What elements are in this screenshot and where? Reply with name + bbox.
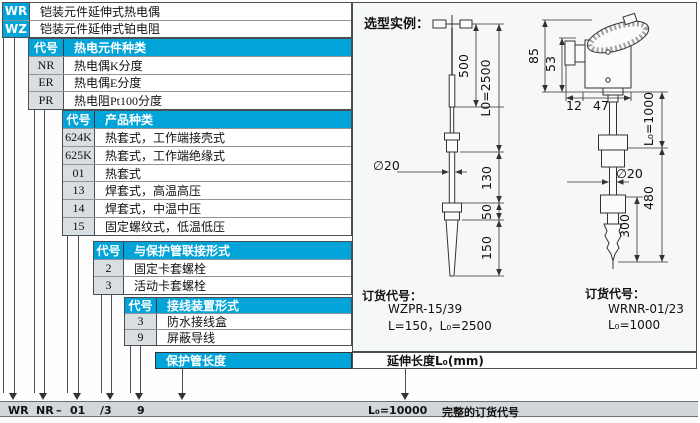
dim-dia20-2: ∅20 xyxy=(616,166,643,181)
arrow-down-icon xyxy=(178,393,186,400)
desc-cell: 铠装元件延伸式铂电阻 xyxy=(30,21,351,38)
table-row: 624K 热套式，工作端接壳式 xyxy=(63,128,351,146)
desc-cell: 活动卡套螺栓 xyxy=(124,277,351,294)
head-bolt-1 xyxy=(606,50,610,54)
ferrule-nut-upper xyxy=(445,133,460,140)
table-row: 3 防水接线盒 xyxy=(125,313,351,329)
table-row: 625K 热套式，工作端绝缘式 xyxy=(63,146,351,164)
section-terminal-type: 代号 接线装置形式 3 防水接线盒 9 屏蔽导线 xyxy=(124,297,352,346)
head-nipple xyxy=(608,95,618,102)
bar-code-9: 9 xyxy=(137,404,145,417)
dim-300: 300 xyxy=(617,214,632,238)
order-code-bar: WR NR – 01 /3 9 L₀=10000 完整的订货代号 xyxy=(0,401,698,417)
arrow-down-icon xyxy=(135,393,143,400)
dim-85: 85 xyxy=(526,48,541,64)
section-product-type: 代号 产品种类 624K 热套式，工作端接壳式 625K 热套式，工作端绝缘式 … xyxy=(62,110,352,236)
head-neck xyxy=(603,88,623,95)
table-row: 01 热套式 xyxy=(63,164,351,182)
desc-cell: 热电阻Pt100分度 xyxy=(64,92,351,109)
dim-dia20-1: ∅20 xyxy=(373,158,400,173)
arrow-down-icon xyxy=(39,393,47,400)
header-title-cell: 与保护管联接形式 xyxy=(124,242,351,259)
section-element-type: 代号 热电元件种类 NR 热电偶K分度 ER 热电偶E分度 PR 热电阻Pt10… xyxy=(28,38,352,110)
bar-length-code: L₀=10000 xyxy=(368,404,427,417)
order-detail-1: L=150，L₀=2500 xyxy=(388,317,492,334)
tube-length-header: 保护管长度 xyxy=(155,352,352,369)
code-cell: 3 xyxy=(94,277,124,294)
ferrule-nut-upper-hex xyxy=(447,140,458,152)
desc-cell: 铠装元件延伸式热电偶 xyxy=(30,3,351,20)
connector-leg-terminal xyxy=(130,345,141,393)
dim-47: 47 xyxy=(593,98,609,113)
lead-plug-left xyxy=(433,20,446,28)
code-cell: 13 xyxy=(63,182,95,199)
ferrule-nut-lower-hex xyxy=(445,212,460,220)
code-cell: PR xyxy=(29,92,64,109)
desc-cell: 热电偶E分度 xyxy=(64,75,351,92)
header-code-cell: 代号 xyxy=(125,298,157,313)
section-header: 代号 接线装置形式 xyxy=(125,298,351,313)
probe-tube-thin xyxy=(450,107,453,133)
probe-sheath xyxy=(449,75,455,107)
code-cell-wz: WZ xyxy=(3,21,30,38)
code-cell: 624K xyxy=(63,129,95,146)
order-code-2: WRNR-01/23 xyxy=(608,302,684,316)
dim-480: 480 xyxy=(641,186,656,210)
connector-leg-connection xyxy=(101,294,112,393)
table-row: ER 热电偶E分度 xyxy=(29,74,351,92)
table-row: 9 屏蔽导线 xyxy=(125,329,351,345)
dim-12: 12 xyxy=(566,98,582,113)
table-row: 3 活动卡套螺栓 xyxy=(94,276,351,294)
code-cell: 3 xyxy=(125,314,157,329)
code-cell: 2 xyxy=(94,260,124,277)
desc-cell: 屏蔽导线 xyxy=(157,330,351,345)
connector-leg-tube-length xyxy=(182,369,183,393)
bar-code-slash3: /3 xyxy=(100,404,112,417)
dim-500: 500 xyxy=(456,54,471,78)
extension-length-label: 延伸长度L₀(mm) xyxy=(387,352,484,369)
bar-caption: 完整的订货代号 xyxy=(442,404,519,420)
cable-entry-inner xyxy=(575,45,585,62)
table-row: WZ 铠装元件延伸式铂电阻 xyxy=(3,20,351,38)
header-code-cell: 代号 xyxy=(63,111,95,128)
order-code-1: WZPR-15/39 xyxy=(388,302,462,316)
code-cell: 01 xyxy=(63,165,95,182)
probe-tube-upper-2 xyxy=(610,102,617,135)
header-code-cell: 代号 xyxy=(29,39,64,56)
order-detail-2: L₀=1000 xyxy=(608,318,660,332)
probe-diagram-1: 500 L0=2500 130 50 150 ∅20 xyxy=(373,15,504,276)
union-nut-lower xyxy=(602,150,625,167)
desc-cell: 焊套式，中温中压 xyxy=(95,200,351,217)
arrow-down-icon xyxy=(73,393,81,400)
desc-cell: 防水接线盒 xyxy=(157,314,351,329)
dim-150: 150 xyxy=(479,236,494,260)
desc-cell: 热套式，工作端绝缘式 xyxy=(95,147,351,164)
arrow-down-icon xyxy=(106,393,114,400)
desc-cell: 固定卡套螺栓 xyxy=(124,260,351,277)
connector-leg-product xyxy=(67,235,79,393)
code-cell: 15 xyxy=(63,218,95,235)
dim-130: 130 xyxy=(479,166,494,190)
code-cell-wr: WR xyxy=(3,3,30,20)
dim-l0-1000: L₀=1000 xyxy=(641,92,656,146)
ferrule-nut-lower xyxy=(443,203,462,212)
code-cell: ER xyxy=(29,75,64,92)
tube-length-label: 保护管长度 xyxy=(166,352,226,369)
probe-tip-cone xyxy=(446,220,458,276)
header-title-cell: 热电元件种类 xyxy=(64,39,351,56)
dim-53: 53 xyxy=(543,56,558,72)
table-row: 2 固定卡套螺栓 xyxy=(94,259,351,277)
table-row: 13 焊套式，高温高压 xyxy=(63,181,351,199)
table-row: PR 热电阻Pt100分度 xyxy=(29,91,351,109)
section-connection-type: 代号 与保护管联接形式 2 固定卡套螺栓 3 活动卡套螺栓 xyxy=(93,241,352,295)
table-row: NR 热电偶K分度 xyxy=(29,56,351,74)
bar-code-dash: – xyxy=(56,404,62,417)
bar-code-wr: WR xyxy=(8,404,29,417)
bar-code-01: 01 xyxy=(70,404,85,417)
connector-leg-extension xyxy=(405,369,406,393)
dim-l0-2500: L0=2500 xyxy=(478,59,493,116)
header-title-cell: 接线装置形式 xyxy=(157,298,351,313)
desc-cell: 热套式 xyxy=(95,165,351,182)
code-cell: 9 xyxy=(125,330,157,345)
table-row: 15 固定螺纹式，低温低压 xyxy=(63,217,351,235)
table-row: WR 铠装元件延伸式热电偶 xyxy=(3,3,351,20)
desc-cell: 焊套式，高温高压 xyxy=(95,182,351,199)
header-code-cell: 代号 xyxy=(94,242,124,259)
section-header: 代号 与保护管联接形式 xyxy=(94,242,351,259)
extension-length-header: 延伸长度L₀(mm) xyxy=(352,352,697,369)
dim-50: 50 xyxy=(479,204,494,220)
table-row: 14 焊套式，中温中压 xyxy=(63,199,351,217)
top-code-block: WR 铠装元件延伸式热电偶 WZ 铠装元件延伸式铂电阻 xyxy=(2,2,352,38)
desc-cell: 热套式，工作端接壳式 xyxy=(95,129,351,146)
lead-plug-right xyxy=(460,20,472,28)
order-code-label-2: 订货代号： xyxy=(585,285,645,302)
probe-diagram-2: 85 53 12 47 L₀=1000 480 300 ∅20 xyxy=(526,13,668,269)
cable-entry-outer xyxy=(565,41,575,65)
probe-tube-20 xyxy=(449,152,454,203)
code-cell: 625K xyxy=(63,147,95,164)
section-header: 代号 热电元件种类 xyxy=(29,39,351,56)
section-header: 代号 产品种类 xyxy=(63,111,351,128)
desc-cell: 热电偶K分度 xyxy=(64,57,351,74)
arrow-down-icon xyxy=(401,393,409,400)
head-bolt-2 xyxy=(606,78,610,82)
arrow-down-icon xyxy=(9,393,17,400)
connector-leg-element xyxy=(34,109,45,393)
union-nut-upper xyxy=(599,135,628,150)
connector-leg-wr xyxy=(3,37,15,393)
code-cell: 14 xyxy=(63,200,95,217)
datasheet-page: WR 铠装元件延伸式热电偶 WZ 铠装元件延伸式铂电阻 代号 热电元件种类 NR… xyxy=(0,0,700,423)
bar-code-nr: NR xyxy=(36,404,54,417)
hex-nut-2 xyxy=(601,195,626,213)
header-title-cell: 产品种类 xyxy=(95,111,351,128)
desc-cell: 固定螺纹式，低温低压 xyxy=(95,218,351,235)
code-cell: NR xyxy=(29,57,64,74)
